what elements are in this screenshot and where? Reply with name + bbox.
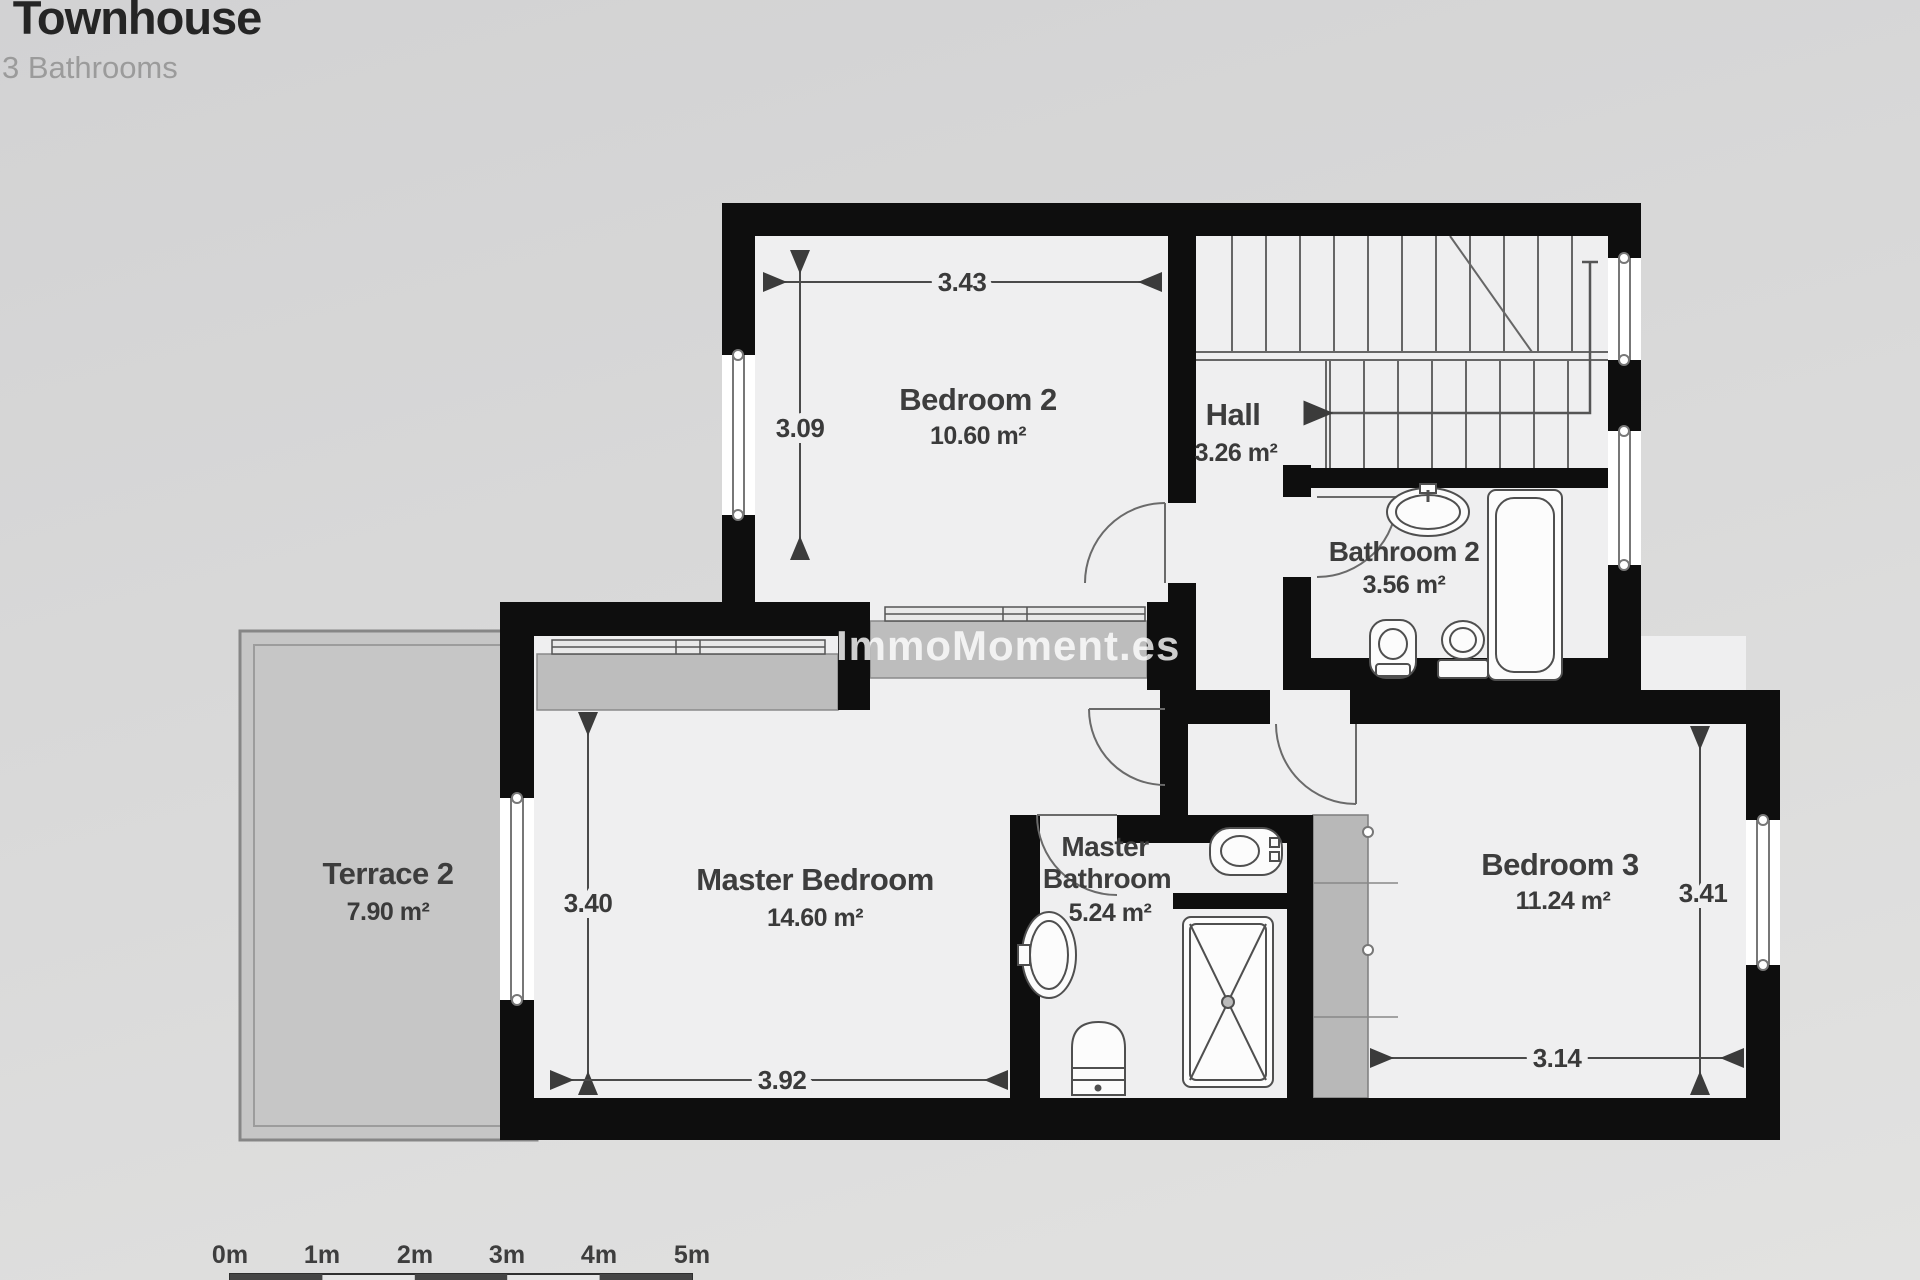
floor-plan-drawing: 3.43 3.09 3.40 3.92 3.41 3.14 Bedroom 2 …: [0, 0, 1920, 1280]
dim-master-bedroom-depth: 3.40: [564, 888, 613, 918]
wall-toilet-icon: [1210, 828, 1282, 875]
terrace-door-window: [500, 793, 534, 1005]
sliding-door-rail: [885, 607, 1145, 621]
bedroom2-area: 10.60 m²: [930, 422, 1026, 450]
bathtub-icon: [1488, 490, 1562, 680]
bedroom2-label: Bedroom 2: [899, 382, 1056, 417]
scale-label-2: 2m: [397, 1241, 433, 1269]
window: [1608, 253, 1641, 365]
scale-label-4: 4m: [581, 1241, 617, 1269]
dim-bedroom3-depth: 3.41: [1679, 878, 1728, 908]
bedroom3-label: Bedroom 3: [1481, 847, 1639, 882]
dim-bedroom3-width: 3.14: [1533, 1043, 1583, 1073]
sliding-door-rail: [552, 640, 825, 654]
shower-icon: [1183, 917, 1273, 1087]
master-bedroom-label: Master Bedroom: [696, 862, 934, 897]
watermark: ImmoMoment.es: [836, 622, 1180, 669]
bidet-icon: [1370, 620, 1416, 678]
hall-label: Hall: [1206, 397, 1261, 432]
master-bathroom-label-2: Bathroom: [1043, 863, 1171, 894]
hall-area: 3.26 m²: [1195, 439, 1278, 467]
dim-bedroom2-depth: 3.09: [776, 413, 825, 443]
scale-label-1: 1m: [304, 1241, 340, 1269]
window: [1746, 815, 1780, 970]
bathroom2-area: 3.56 m²: [1363, 571, 1446, 599]
toilet-icon: [1072, 1022, 1125, 1095]
master-bathroom-area: 5.24 m²: [1069, 899, 1152, 927]
terrace2-area: 7.90 m²: [347, 898, 430, 926]
window: [722, 350, 755, 520]
floor-plan-page: - Townhouse 3 Bathrooms: [0, 0, 1920, 1280]
bathroom2-label: Bathroom 2: [1329, 536, 1480, 567]
window: [1608, 426, 1641, 570]
scale-label-0: 0m: [212, 1241, 248, 1269]
scale-bar: 0m 1m 2m 3m 4m 5m: [212, 1241, 710, 1280]
bedroom3-area: 11.24 m²: [1516, 887, 1611, 915]
scale-label-5: 5m: [674, 1241, 710, 1269]
dim-master-bedroom-width: 3.92: [758, 1065, 807, 1095]
scale-label-3: 3m: [489, 1241, 525, 1269]
toilet-icon: [1438, 621, 1488, 678]
master-bathroom-label-1: Master: [1061, 831, 1149, 862]
dim-bedroom2-width: 3.43: [938, 267, 987, 297]
master-bedroom-area: 14.60 m²: [767, 904, 863, 932]
terrace2-label: Terrace 2: [322, 856, 453, 891]
